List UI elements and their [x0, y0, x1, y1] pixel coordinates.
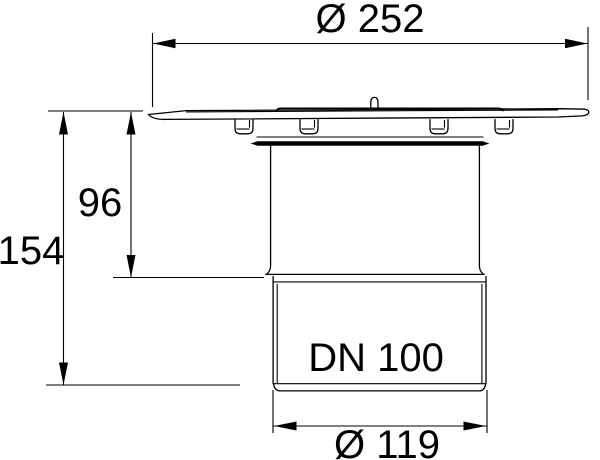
dimension-heights: 154 96 — [0, 111, 264, 385]
arrowhead-down-icon — [59, 363, 68, 386]
clamping-collar — [251, 137, 490, 146]
collar-band — [251, 141, 490, 145]
arrowhead-right-icon — [464, 422, 487, 431]
dimension-top-diameter: Ø 252 — [153, 0, 589, 107]
clip-tab — [495, 120, 513, 134]
nominal-width-label: DN 100 — [308, 336, 444, 380]
dimension-bottom-diameter: Ø 119 — [273, 390, 487, 460]
drain-elevation-drawing: Ø 252 154 96 — [0, 0, 600, 460]
outlet-socket: DN 100 — [273, 277, 486, 391]
arrowhead-down-icon — [127, 255, 136, 278]
diameter-top-label: Ø 252 — [316, 0, 425, 41]
height-total-label: 154 — [0, 229, 64, 273]
clip-tab — [300, 120, 318, 134]
flange-clips — [235, 120, 513, 134]
technical-drawing-canvas: Ø 252 154 96 — [0, 0, 600, 460]
clip-tab — [430, 120, 448, 134]
arrowhead-up-icon — [127, 112, 136, 135]
drain-body — [266, 146, 484, 274]
clip-tab — [235, 120, 253, 134]
height-upper-label: 96 — [78, 181, 123, 225]
arrowhead-left-icon — [274, 422, 297, 431]
body-wall-right — [479, 146, 483, 274]
lifting-pin — [371, 97, 378, 108]
arrowhead-left-icon — [153, 39, 176, 49]
arrowhead-right-icon — [565, 39, 588, 49]
flange — [149, 97, 589, 119]
socket-bottom-rim — [274, 384, 486, 391]
body-wall-left — [267, 146, 271, 274]
diameter-bottom-label: Ø 119 — [334, 423, 440, 460]
arrowhead-up-icon — [59, 112, 68, 135]
